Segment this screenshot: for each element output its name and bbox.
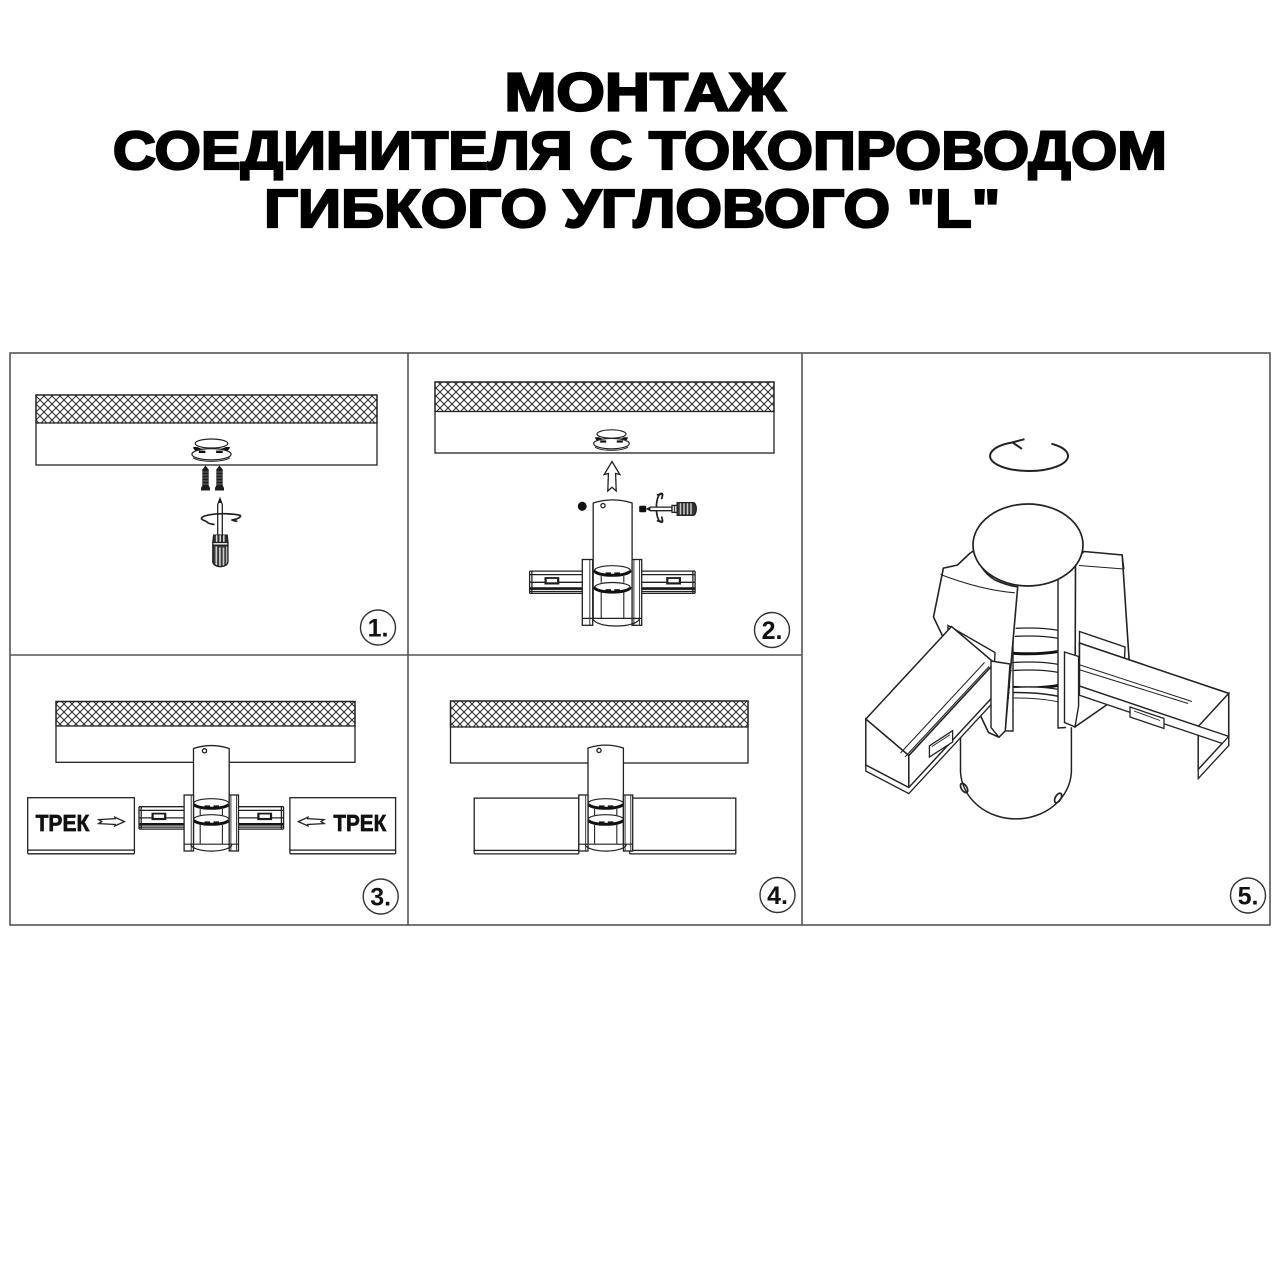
svg-text:СОЕДИНИТЕЛЯ С ТОКОПРОВОДОМ: СОЕДИНИТЕЛЯ С ТОКОПРОВОДОМ xyxy=(113,121,1167,181)
svg-text:3.: 3. xyxy=(370,884,391,912)
svg-text:ТРЕК: ТРЕК xyxy=(36,810,91,836)
svg-text:4.: 4. xyxy=(767,882,788,910)
svg-text:МОНТАЖ: МОНТАЖ xyxy=(505,62,787,122)
svg-text:2.: 2. xyxy=(762,617,783,645)
svg-text:ГИБКОГО УГЛОВОГО "L": ГИБКОГО УГЛОВОГО "L" xyxy=(264,179,1000,239)
svg-text:ТРЕК: ТРЕК xyxy=(333,810,387,836)
svg-text:1.: 1. xyxy=(368,615,389,643)
svg-text:5.: 5. xyxy=(1238,883,1259,911)
